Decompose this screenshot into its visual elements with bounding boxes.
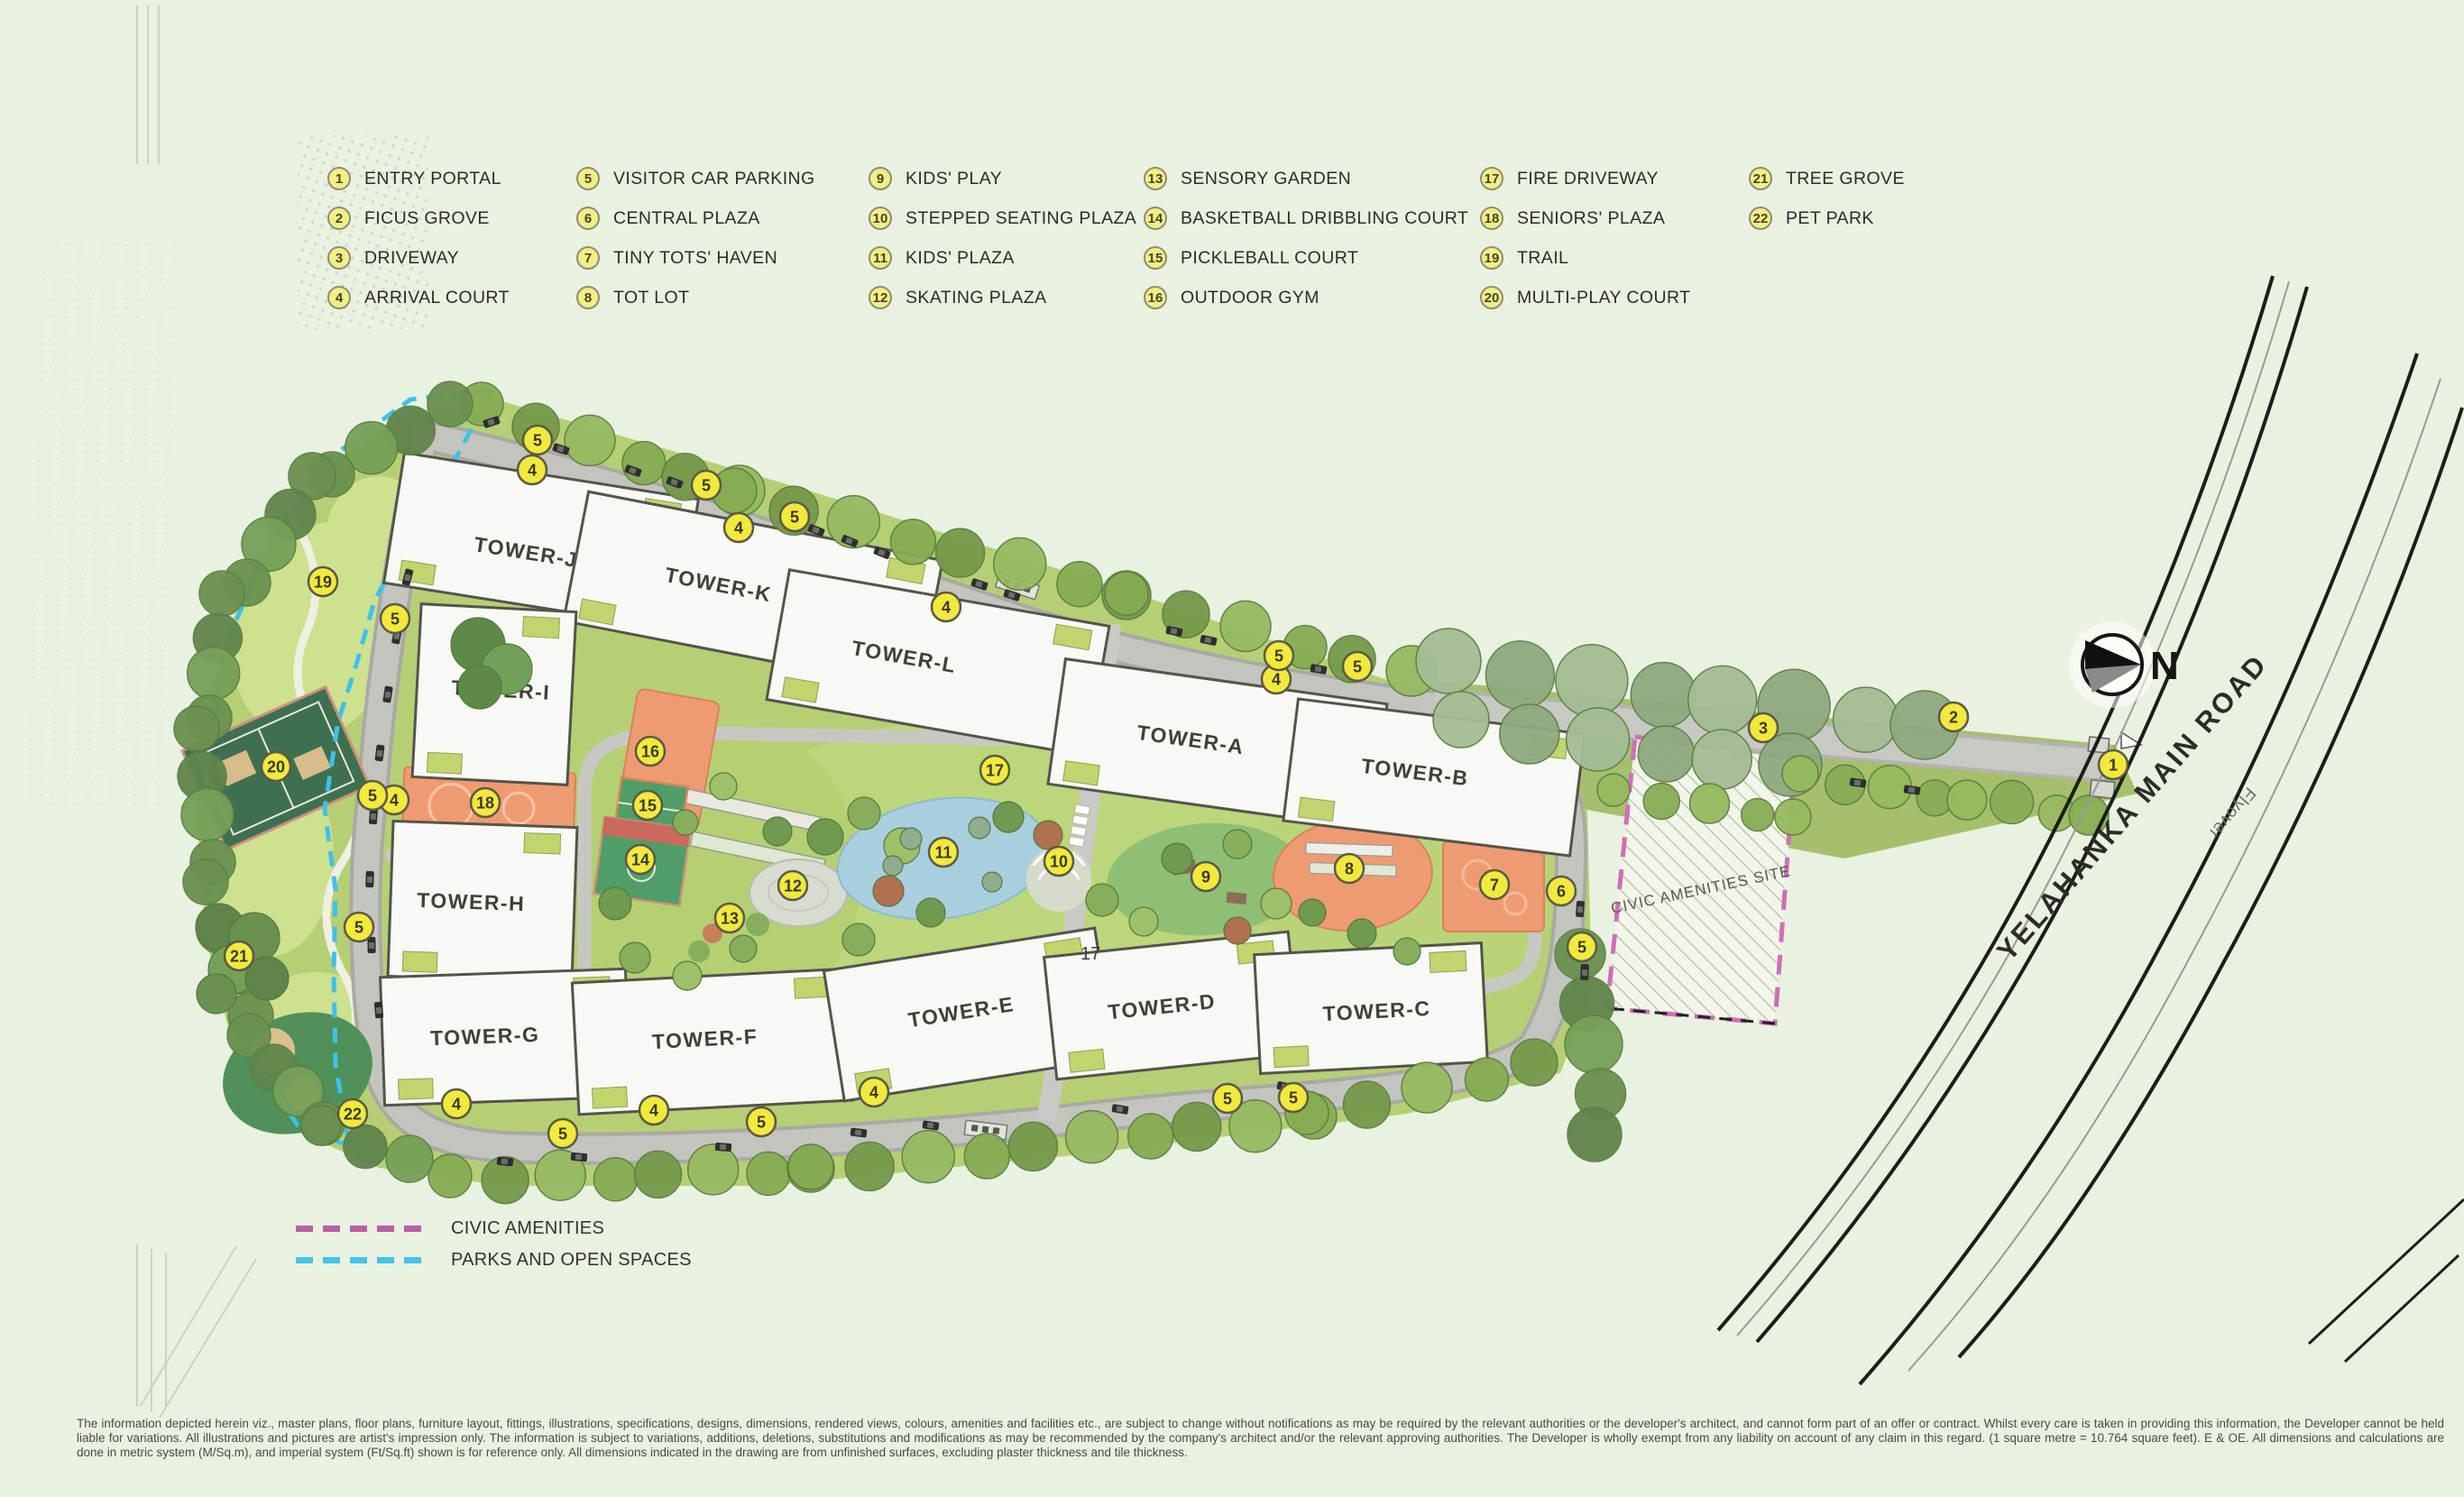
svg-text:4: 4	[649, 1102, 658, 1120]
legend-number-badge: 22	[1749, 207, 1772, 230]
tree-icon	[788, 1144, 833, 1189]
tree-icon	[1834, 687, 1899, 752]
tree-icon	[1568, 1107, 1622, 1162]
tree-icon	[1129, 907, 1158, 936]
tree-icon	[1162, 843, 1192, 874]
tree-icon	[982, 872, 1002, 892]
tree-icon	[1034, 821, 1062, 850]
tree-icon	[845, 1142, 894, 1190]
legend-number-badge: 8	[576, 286, 600, 309]
svg-text:5: 5	[1577, 939, 1586, 957]
legend-number-badge: 7	[576, 246, 600, 270]
legend-item-6: 6CENTRAL PLAZA	[576, 207, 815, 230]
plan-marker-14-32: 14	[626, 845, 655, 874]
plan-marker-8-26: 8	[1335, 854, 1364, 883]
tree-icon	[428, 1154, 472, 1198]
svg-text:5: 5	[533, 432, 542, 450]
tree-icon	[620, 942, 650, 973]
plan-marker-18-36: 18	[471, 788, 500, 817]
plan-marker-4-4: 4	[724, 513, 753, 542]
plan-marker-5-22: 5	[1279, 1083, 1308, 1112]
plan-marker-4-10: 4	[860, 1078, 888, 1107]
svg-text:5: 5	[702, 477, 711, 495]
plan-marker-5-21: 5	[1213, 1084, 1242, 1113]
plan-marker-1-0: 1	[2099, 750, 2128, 779]
tree-icon	[1402, 1062, 1452, 1113]
plan-marker-5-18: 5	[345, 913, 373, 941]
tree-icon	[994, 537, 1046, 590]
plan-marker-6-24: 6	[1547, 877, 1576, 905]
legend-number-badge: 21	[1749, 167, 1772, 190]
legend-number-badge: 6	[576, 207, 600, 230]
legend-item-label: SENIORS' PLAZA	[1517, 208, 1665, 229]
svg-text:5: 5	[790, 509, 799, 527]
civic-amenities-legend-row: CIVIC AMENITIES	[296, 1219, 604, 1237]
tree-icon	[1692, 730, 1751, 789]
legend-item-label: PET PARK	[1786, 208, 1874, 229]
tree-icon	[1223, 830, 1252, 859]
tree-icon	[1597, 774, 1630, 806]
tree-icon	[993, 802, 1024, 832]
tree-icon	[1224, 917, 1251, 944]
plan-marker-11-29: 11	[929, 838, 958, 867]
legend-item-label: STEPPED SEATING PLAZA	[906, 208, 1136, 229]
legend-item-8: 8TOT LOT	[576, 286, 815, 309]
plan-marker-5-11: 5	[523, 426, 552, 455]
tree-icon	[174, 706, 219, 751]
parks-dashed-swatch	[296, 1257, 431, 1263]
tree-icon	[1416, 629, 1481, 693]
legend-item-label: KIDS' PLAY	[906, 169, 1002, 189]
svg-text:2: 2	[1949, 709, 1958, 727]
legend-number-badge: 10	[869, 207, 892, 230]
legend-item-1: 1ENTRY PORTAL	[327, 167, 510, 190]
car-icon	[365, 871, 374, 887]
tree-icon	[599, 887, 631, 920]
svg-text:8: 8	[1345, 860, 1354, 878]
legend-number-badge: 2	[327, 207, 351, 230]
legend-item-18: 18SENIORS' PLAZA	[1480, 207, 1690, 230]
tree-icon	[1643, 784, 1679, 820]
tree-icon	[593, 1158, 637, 1201]
svg-text:11: 11	[934, 844, 952, 862]
tree-icon	[1511, 1039, 1558, 1086]
legend-number-badge: 4	[327, 286, 351, 309]
tree-icon	[1344, 1081, 1391, 1128]
tree-icon	[344, 1125, 387, 1169]
plan-marker-22-40: 22	[338, 1099, 367, 1128]
legend-item-20: 20MULTI-PLAY COURT	[1480, 286, 1690, 309]
svg-text:10: 10	[1050, 853, 1068, 871]
legend-number-badge: 11	[869, 246, 892, 270]
flyover-label: Flyover	[2203, 784, 2258, 843]
legend-item-label: ENTRY PORTAL	[364, 169, 501, 189]
tree-icon	[848, 797, 880, 830]
disclaimer-text: The information depicted herein viz., ma…	[77, 1417, 2444, 1460]
car-icon	[1580, 964, 1589, 980]
legend-item-label: PICKLEBALL COURT	[1181, 248, 1358, 269]
tree-icon	[763, 817, 792, 846]
car-icon	[367, 937, 375, 953]
car-icon	[715, 1143, 732, 1152]
legend-column-6: 21TREE GROVE22PET PARK	[1749, 167, 1905, 246]
tree-icon	[1556, 645, 1628, 717]
tree-icon	[301, 1106, 341, 1145]
tree-icon	[936, 528, 985, 577]
tree-icon	[1688, 666, 1757, 734]
tree-icon	[747, 1152, 790, 1195]
legend-column-2: 5VISITOR CAR PARKING6CENTRAL PLAZA7TINY …	[576, 167, 815, 326]
car-icon	[374, 1002, 384, 1019]
svg-text:4: 4	[452, 1096, 461, 1114]
tree-icon	[964, 1134, 1009, 1179]
tree-icon	[199, 571, 244, 616]
svg-text:4: 4	[869, 1084, 878, 1102]
legend-number-badge: 17	[1480, 167, 1503, 190]
plan-marker-5-15: 5	[1343, 652, 1372, 681]
tree-icon	[188, 647, 240, 700]
car-icon	[1576, 901, 1585, 918]
svg-text:4: 4	[528, 462, 537, 480]
legend-item-label: CENTRAL PLAZA	[613, 208, 760, 229]
tree-icon	[1991, 780, 2034, 823]
tree-icon	[1485, 641, 1554, 710]
tree-icon	[1631, 663, 1696, 728]
legend-item-label: TRAIL	[1517, 248, 1568, 269]
tree-icon	[635, 1151, 682, 1198]
tree-icon	[1567, 708, 1630, 771]
legend-column-5: 17FIRE DRIVEWAY18SENIORS' PLAZA19TRAIL20…	[1480, 167, 1690, 326]
tree-icon	[1220, 601, 1271, 651]
svg-text:5: 5	[368, 787, 377, 805]
svg-text:15: 15	[639, 797, 657, 815]
plan-marker-2-1: 2	[1939, 703, 1968, 731]
tree-icon	[1742, 799, 1774, 831]
legend-item-label: SENSORY GARDEN	[1181, 169, 1351, 189]
tree-icon	[1057, 562, 1102, 607]
legend-item-label: TOT LOT	[613, 288, 689, 308]
plan-marker-5-12: 5	[692, 471, 721, 500]
tree-icon	[710, 773, 737, 800]
plan-marker-16-34: 16	[636, 737, 665, 766]
tree-icon	[890, 519, 935, 565]
tree-icon	[900, 828, 922, 850]
tree-icon	[1105, 572, 1148, 615]
legend-number-badge: 1	[327, 167, 351, 190]
legend-number-badge: 13	[1144, 167, 1167, 190]
legend-item-12: 12SKATING PLAZA	[869, 286, 1136, 309]
legend-number-badge: 12	[869, 286, 892, 309]
plan-marker-5-23: 5	[1568, 932, 1596, 961]
north-label: N	[2150, 644, 2179, 688]
svg-text:21: 21	[230, 948, 248, 966]
legend-item-2: 2FICUS GROVE	[327, 207, 510, 230]
svg-text:19: 19	[314, 574, 332, 592]
tree-icon	[1066, 1111, 1118, 1163]
legend-item-3: 3DRIVEWAY	[327, 246, 510, 270]
legend-number-badge: 16	[1144, 286, 1167, 309]
plan-marker-21-39: 21	[225, 941, 253, 970]
legend-number-badge: 15	[1144, 246, 1167, 270]
tree-icon	[1008, 1122, 1057, 1171]
svg-text:5: 5	[354, 919, 363, 937]
svg-text:5: 5	[391, 611, 400, 629]
legend-column-1: 1ENTRY PORTAL2FICUS GROVE3DRIVEWAY4ARRIV…	[327, 167, 510, 326]
legend-item-label: FIRE DRIVEWAY	[1517, 169, 1659, 189]
civic-legend-label: CIVIC AMENITIES	[451, 1218, 604, 1239]
svg-text:12: 12	[784, 877, 802, 895]
plan-marker-17-35: 17	[980, 756, 1009, 785]
tree-icon	[1500, 704, 1559, 764]
tree-icon	[883, 856, 903, 876]
svg-text:4: 4	[734, 519, 743, 537]
plan-marker-9-27: 9	[1191, 862, 1220, 891]
fire-driveway-text: 17	[1080, 944, 1100, 964]
legend-item-11: 11KIDS' PLAZA	[869, 246, 1136, 270]
tree-icon	[902, 1131, 954, 1183]
legend-number-badge: 19	[1480, 246, 1503, 270]
plan-marker-5-20: 5	[747, 1107, 776, 1136]
plan-marker-5-17: 5	[358, 781, 387, 810]
plan-marker-5-14: 5	[1264, 641, 1293, 670]
plan-marker-7-25: 7	[1480, 870, 1509, 899]
legend-item-14: 14BASKETBALL DRIBBLING COURT	[1144, 207, 1468, 230]
svg-text:13: 13	[721, 910, 739, 928]
svg-text:5: 5	[1274, 647, 1283, 666]
plan-marker-19-37: 19	[308, 567, 337, 596]
plan-marker-5-19: 5	[548, 1119, 577, 1148]
tree-icon	[1466, 1058, 1509, 1101]
legend-number-badge: 5	[576, 167, 600, 190]
tree-icon	[1775, 799, 1811, 835]
svg-text:17: 17	[986, 762, 1004, 780]
tree-icon	[197, 974, 236, 1014]
legend-item-5: 5VISITOR CAR PARKING	[576, 167, 815, 190]
tree-icon	[565, 415, 615, 465]
svg-text:4: 4	[390, 792, 399, 810]
svg-text:3: 3	[1759, 720, 1768, 738]
svg-text:14: 14	[631, 851, 649, 869]
tower-label-g: TOWER-G	[430, 1023, 540, 1050]
plan-marker-5-16: 5	[381, 604, 409, 633]
tree-icon	[1128, 1114, 1173, 1159]
legend-item-label: VISITOR CAR PARKING	[613, 169, 815, 189]
parks-legend-label: PARKS AND OPEN SPACES	[451, 1250, 692, 1271]
legend-item-9: 9KIDS' PLAY	[869, 167, 1136, 190]
legend-item-label: TREE GROVE	[1786, 169, 1905, 189]
tree-icon	[622, 442, 666, 485]
tree-icon	[1433, 692, 1489, 748]
north-arrow-icon	[2069, 621, 2156, 708]
plan-marker-5-13: 5	[780, 502, 809, 531]
tree-icon	[1299, 899, 1326, 926]
tree-icon	[842, 923, 875, 956]
tree-icon	[688, 1144, 739, 1195]
plan-marker-10-28: 10	[1044, 847, 1073, 876]
svg-text:22: 22	[344, 1106, 362, 1124]
tree-icon	[1172, 1102, 1221, 1151]
legend-item-10: 10STEPPED SEATING PLAZA	[869, 207, 1136, 230]
amenities-legend: 1ENTRY PORTAL2FICUS GROVE3DRIVEWAY4ARRIV…	[0, 0, 2464, 343]
tree-icon	[1086, 884, 1118, 916]
svg-text:5: 5	[1289, 1089, 1298, 1107]
tree-icon	[916, 898, 945, 927]
svg-text:7: 7	[1490, 877, 1499, 895]
tree-icon	[1347, 919, 1376, 948]
tree-icon	[458, 666, 501, 709]
legend-column-4: 13SENSORY GARDEN14BASKETBALL DRIBBLING C…	[1144, 167, 1468, 326]
legend-item-16: 16OUTDOOR GYM	[1144, 286, 1468, 309]
legend-item-label: FICUS GROVE	[364, 208, 490, 229]
plan-marker-4-3: 4	[518, 455, 547, 484]
legend-item-label: DRIVEWAY	[364, 248, 459, 269]
master-plan-page: CIVIC AMENITIES SITE TOWER-JTOWER-KTOWER…	[0, 0, 2464, 1497]
legend-item-22: 22PET PARK	[1749, 207, 1905, 230]
svg-text:4: 4	[942, 599, 951, 617]
legend-number-badge: 14	[1144, 207, 1167, 230]
legend-item-13: 13SENSORY GARDEN	[1144, 167, 1468, 190]
svg-text:6: 6	[1557, 883, 1566, 901]
legend-item-17: 17FIRE DRIVEWAY	[1480, 167, 1690, 190]
svg-text:4: 4	[1272, 671, 1281, 689]
legend-item-label: ARRIVAL COURT	[364, 288, 510, 308]
tree-icon	[1565, 1015, 1623, 1073]
svg-text:18: 18	[476, 794, 494, 813]
legend-item-4: 4ARRIVAL COURT	[327, 286, 510, 309]
legend-item-19: 19TRAIL	[1480, 246, 1690, 270]
tower-label-h: TOWER-H	[417, 888, 526, 915]
tree-icon	[673, 961, 702, 990]
tree-icon	[428, 381, 473, 427]
tree-icon	[1393, 938, 1420, 965]
svg-text:5: 5	[1223, 1090, 1232, 1108]
legend-item-label: BASKETBALL DRIBBLING COURT	[1181, 208, 1468, 229]
svg-text:9: 9	[1201, 868, 1210, 886]
plan-marker-4-5: 4	[932, 592, 961, 621]
legend-number-badge: 20	[1480, 286, 1503, 309]
svg-text:20: 20	[267, 758, 285, 776]
tree-icon	[730, 935, 757, 962]
legend-item-label: OUTDOOR GYM	[1181, 288, 1319, 308]
legend-item-15: 15PICKLEBALL COURT	[1144, 246, 1468, 270]
legend-item-label: MULTI-PLAY COURT	[1517, 288, 1690, 308]
tree-icon	[673, 810, 698, 835]
tree-icon	[1690, 784, 1730, 823]
tree-icon	[873, 876, 904, 906]
svg-text:5: 5	[757, 1114, 766, 1132]
tree-icon	[1947, 780, 1987, 820]
tree-icon	[807, 819, 843, 855]
legend-item-7: 7TINY TOTS' HAVEN	[576, 246, 815, 270]
plan-marker-20-38: 20	[262, 752, 290, 781]
car-icon	[571, 1153, 588, 1162]
tree-icon	[386, 1135, 433, 1182]
legend-item-label: KIDS' PLAZA	[906, 248, 1015, 269]
legend-item-21: 21TREE GROVE	[1749, 167, 1905, 190]
svg-text:1: 1	[2109, 757, 2118, 775]
legend-item-label: TINY TOTS' HAVEN	[613, 248, 777, 269]
svg-text:16: 16	[641, 743, 659, 761]
civic-dashed-swatch	[296, 1226, 431, 1232]
legend-number-badge: 18	[1480, 207, 1503, 230]
tree-icon	[969, 817, 990, 839]
tree-icon	[1782, 756, 1818, 792]
legend-column-3: 9KIDS' PLAY10STEPPED SEATING PLAZA11KIDS…	[869, 167, 1136, 326]
plan-marker-4-8: 4	[442, 1089, 471, 1118]
plan-marker-15-33: 15	[633, 791, 662, 820]
tree-icon	[1638, 726, 1694, 782]
svg-text:5: 5	[1353, 658, 1362, 676]
plan-marker-13-31: 13	[715, 904, 744, 932]
legend-item-label: SKATING PLAZA	[906, 288, 1047, 308]
plan-marker-4-9: 4	[639, 1096, 668, 1125]
svg-text:5: 5	[558, 1125, 567, 1143]
plan-marker-12-30: 12	[778, 871, 807, 900]
legend-number-badge: 9	[869, 167, 892, 190]
tree-icon	[183, 859, 228, 905]
plan-marker-3-2: 3	[1749, 713, 1778, 742]
car-icon	[497, 1157, 514, 1167]
legend-number-badge: 3	[327, 246, 351, 270]
tree-icon	[181, 788, 234, 840]
tree-icon	[1261, 888, 1292, 919]
parks-legend-row: PARKS AND OPEN SPACES	[296, 1251, 692, 1269]
